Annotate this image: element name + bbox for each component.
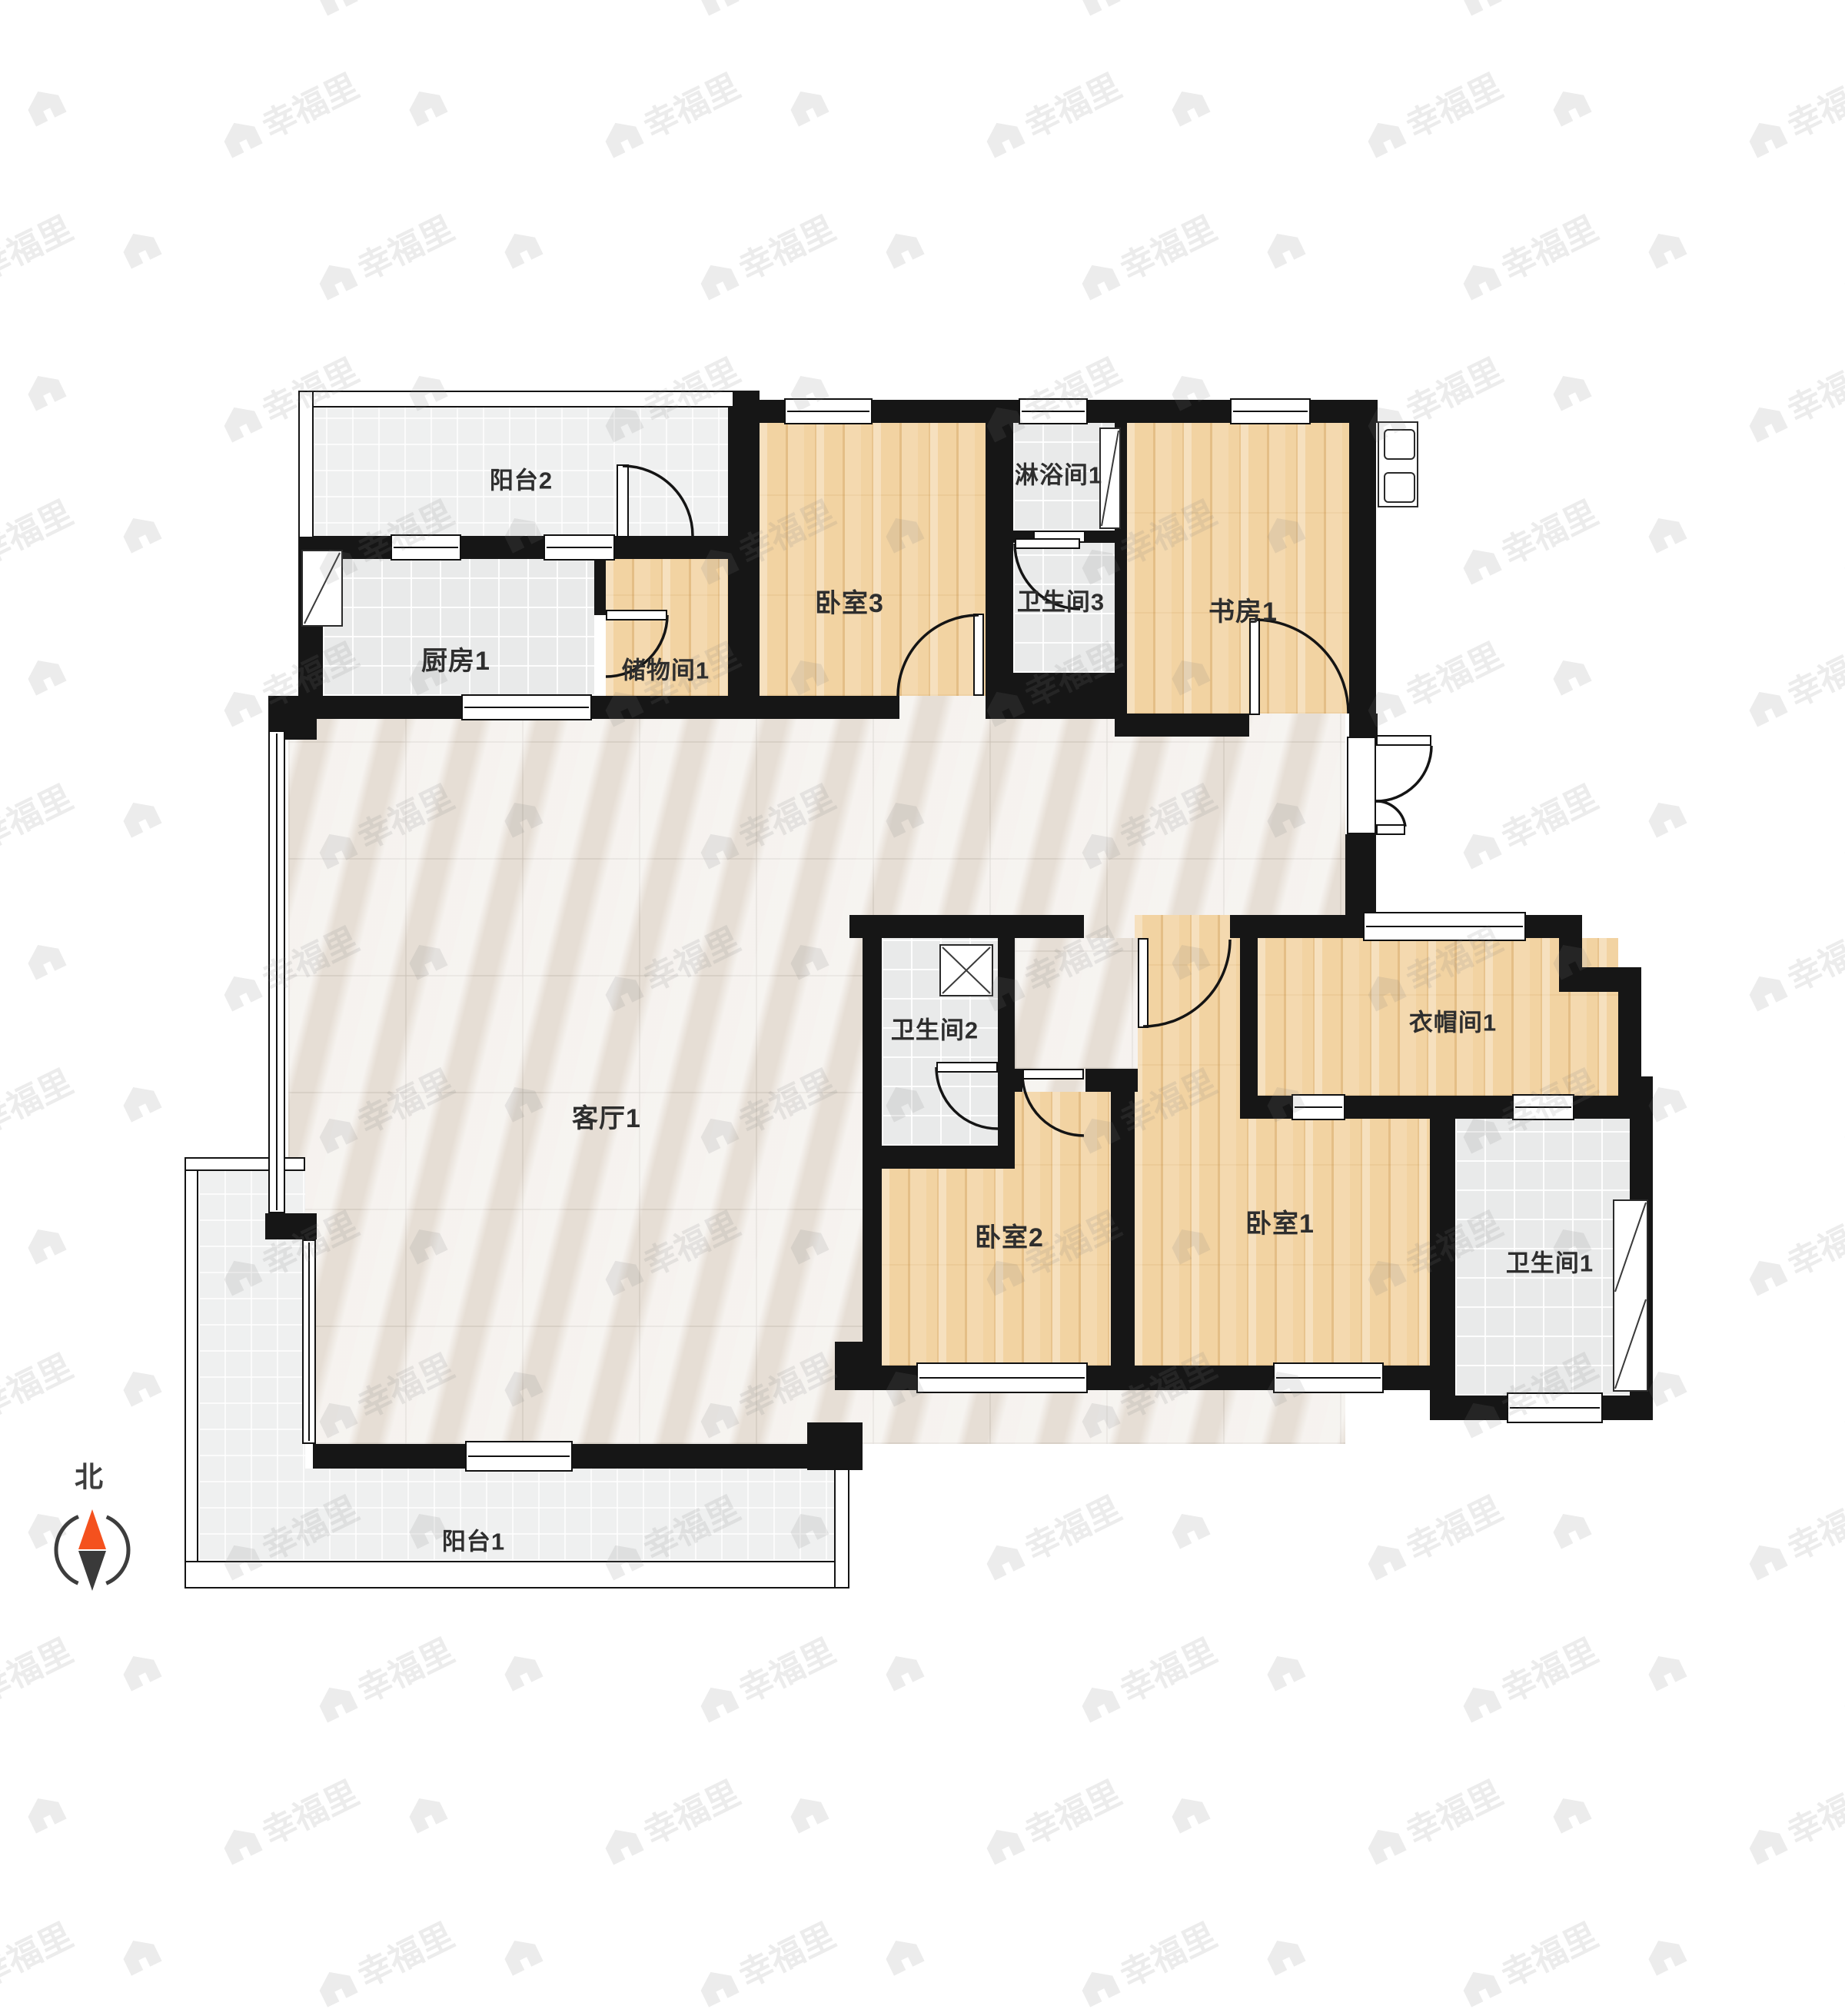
north-label: 北 — [75, 1463, 104, 1492]
watermark-house-icon — [1456, 1963, 1504, 2010]
room-label-kitchen1: 厨房1 — [421, 648, 490, 674]
floor-plan-canvas: 阳台2 厨房1 储物间1 卧室3 淋浴间1 卫生间3 书房1 客厅1 卫生间2 … — [0, 0, 1845, 1845]
room-label-cloak1: 衣帽间1 — [1409, 1011, 1497, 1035]
watermark-item — [1641, 1931, 1689, 1978]
watermark-item: 幸福里 — [309, 1908, 461, 2016]
watermark-item — [1260, 1931, 1308, 1978]
watermark-text: 幸福里 — [0, 1908, 79, 1997]
room-label-bath2: 卫生间2 — [891, 1019, 979, 1043]
watermark-text: 幸福里 — [1111, 1908, 1224, 1997]
room-label-shower1: 淋浴间1 — [1015, 464, 1102, 487]
watermark-item: 幸福里 — [1072, 1908, 1224, 2016]
watermark-house-icon — [693, 1963, 741, 2010]
room-label-study1: 书房1 — [1208, 599, 1278, 625]
watermark-house-icon — [879, 1931, 926, 1978]
watermark-house-icon — [1260, 1931, 1308, 1978]
watermark-text: 幸福里 — [1492, 1908, 1605, 1997]
room-label-bath1: 卫生间1 — [1506, 1252, 1594, 1276]
watermark-item: 幸福里 — [0, 1908, 79, 2016]
room-label-storage1: 储物间1 — [622, 659, 710, 683]
watermark-house-icon — [1837, 1963, 1845, 2010]
watermark-text: 幸福里 — [730, 1908, 843, 1997]
watermark-house-icon — [116, 1931, 164, 1978]
room-label-bath3: 卫生间3 — [1017, 590, 1105, 614]
watermark-item — [116, 1931, 164, 1978]
watermark-item: 幸福里 — [690, 1908, 843, 2016]
room-label-bedroom2: 卧室2 — [975, 1225, 1044, 1251]
watermark-text: 幸福里 — [348, 1908, 461, 1997]
room-labels-layer: 阳台2 厨房1 储物间1 卧室3 淋浴间1 卫生间3 书房1 客厅1 卫生间2 … — [0, 0, 1845, 1845]
room-label-living1: 客厅1 — [572, 1106, 641, 1132]
room-label-balcony1: 阳台1 — [442, 1530, 505, 1554]
room-label-bedroom1: 卧室1 — [1245, 1211, 1315, 1237]
watermark-house-icon — [312, 1963, 360, 2010]
watermark-item — [497, 1931, 545, 1978]
watermark-item — [879, 1931, 926, 1978]
watermark-house-icon — [1075, 1963, 1122, 2010]
watermark-item: 幸福里 — [1453, 1908, 1605, 2016]
watermark-house-icon — [1641, 1931, 1689, 1978]
watermark-item: 幸福里 — [1834, 1908, 1845, 2016]
room-label-bedroom3: 卧室3 — [815, 590, 884, 617]
watermark-house-icon — [497, 1931, 545, 1978]
room-label-balcony2: 阳台2 — [490, 469, 553, 493]
